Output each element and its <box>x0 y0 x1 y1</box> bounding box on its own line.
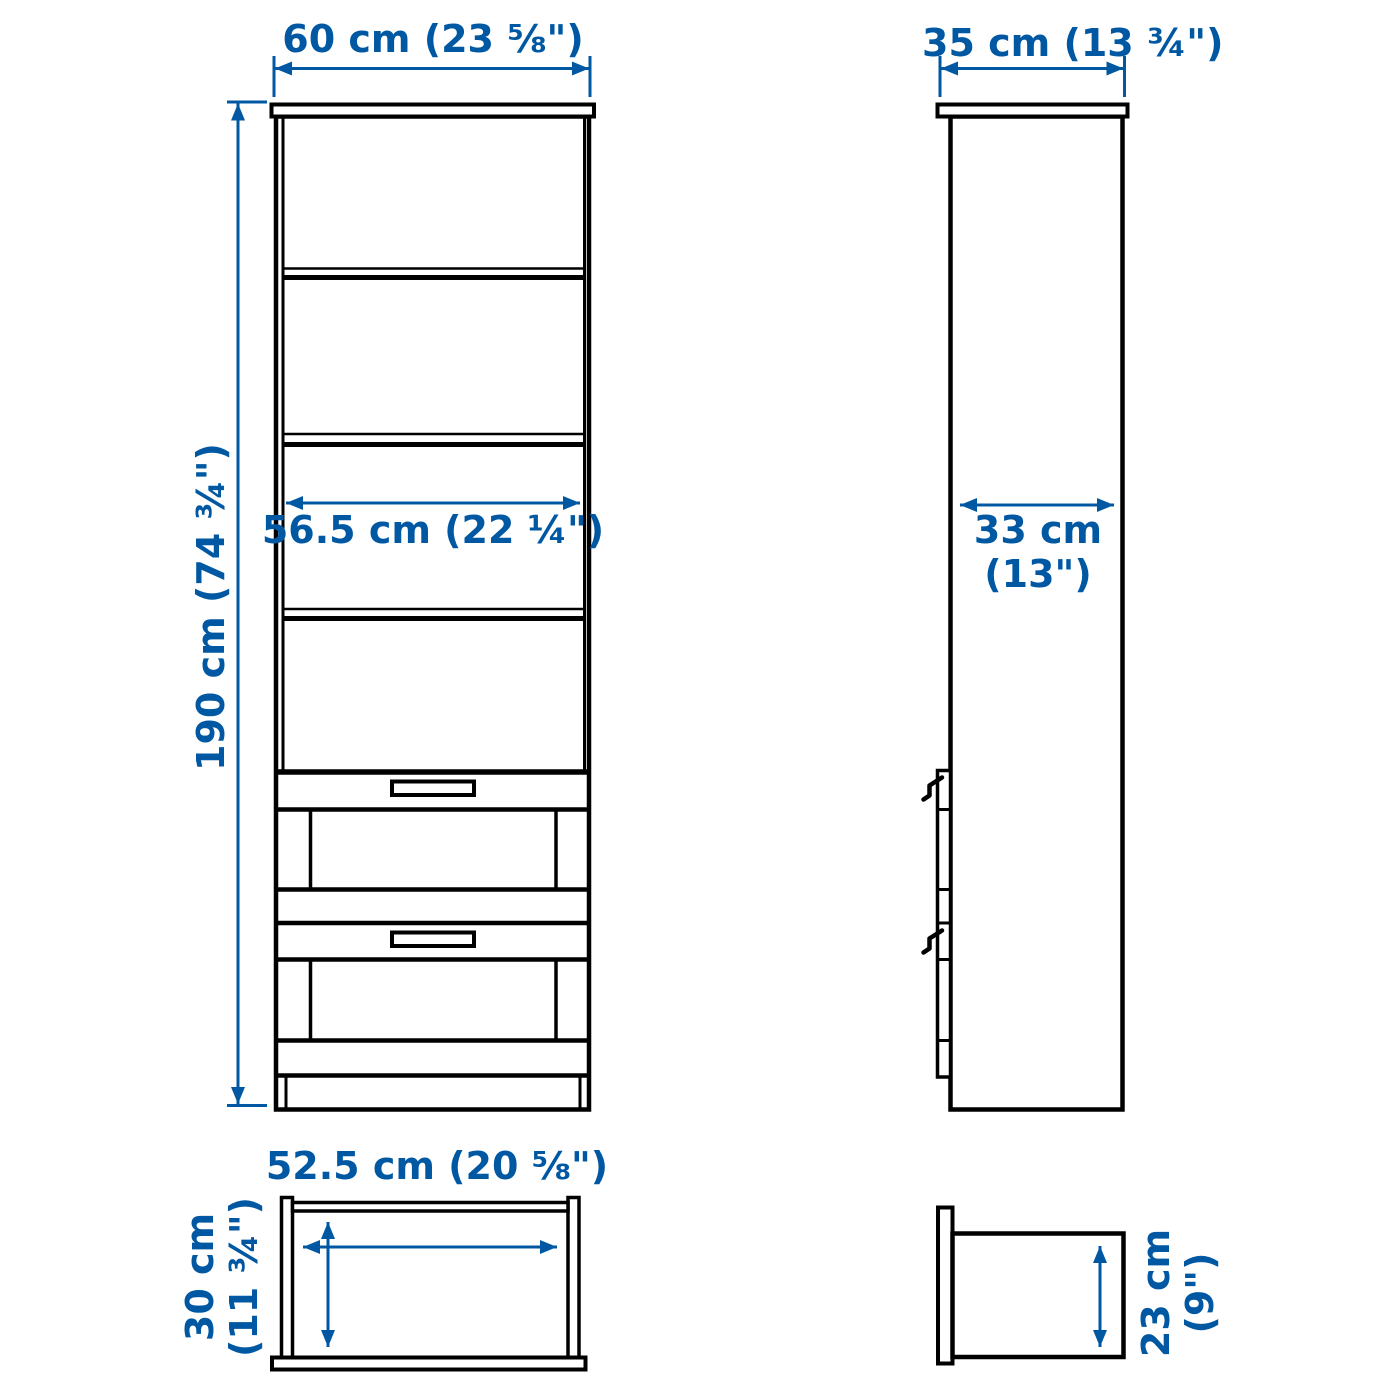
drawer-side-post-left <box>282 1198 293 1364</box>
side-view <box>924 105 1128 1110</box>
drawer-depth-label-line2: (9") <box>1178 1168 1222 1400</box>
side-inner-depth-label-line2: (13") <box>938 552 1138 596</box>
drawer-side-view <box>938 1208 1124 1364</box>
dim-drawer-width-arrow <box>303 1240 557 1254</box>
side-inner-depth-label: 33 cm (13") <box>938 508 1138 596</box>
front-view <box>272 105 595 1110</box>
drawer-2-handle <box>392 933 474 947</box>
side-inner-depth-label-line1: 33 cm <box>938 508 1138 552</box>
drawer-depth-label-line1: 23 cm <box>1134 1168 1178 1400</box>
drawer-height-label: 30 cm (11 ¾") <box>178 1152 266 1400</box>
front-top-panel <box>272 105 595 117</box>
drawer-side-post-right <box>568 1198 579 1364</box>
front-height-label: 190 cm (74 ¾") <box>187 303 235 911</box>
side-body-outline <box>951 117 1123 1110</box>
front-inner-width-label: 56.5 cm (22 ¼") <box>238 506 628 554</box>
drawer-depth-label: 23 cm (9") <box>1134 1168 1222 1400</box>
side-top-panel <box>938 105 1128 117</box>
drawer-1-handle <box>392 782 474 796</box>
drawer-base-plate <box>272 1358 586 1370</box>
dimension-diagram: 60 cm (23 ⅝") 35 cm (13 ¾") 190 cm (74 ¾… <box>0 0 1400 1400</box>
drawer-back-rail <box>293 1203 569 1212</box>
drawer-front-view <box>272 1198 586 1370</box>
front-width-label: 60 cm (23 ⅝") <box>272 15 594 63</box>
side-depth-label: 35 cm (13 ¾") <box>922 19 1142 67</box>
drawer-height-label-line2: (11 ¾") <box>222 1152 266 1400</box>
drawer-height-label-line1: 30 cm <box>178 1152 222 1400</box>
dim-drawer-height-arrow <box>321 1222 335 1347</box>
drawer-width-label: 52.5 cm (20 ⅝") <box>242 1142 632 1190</box>
